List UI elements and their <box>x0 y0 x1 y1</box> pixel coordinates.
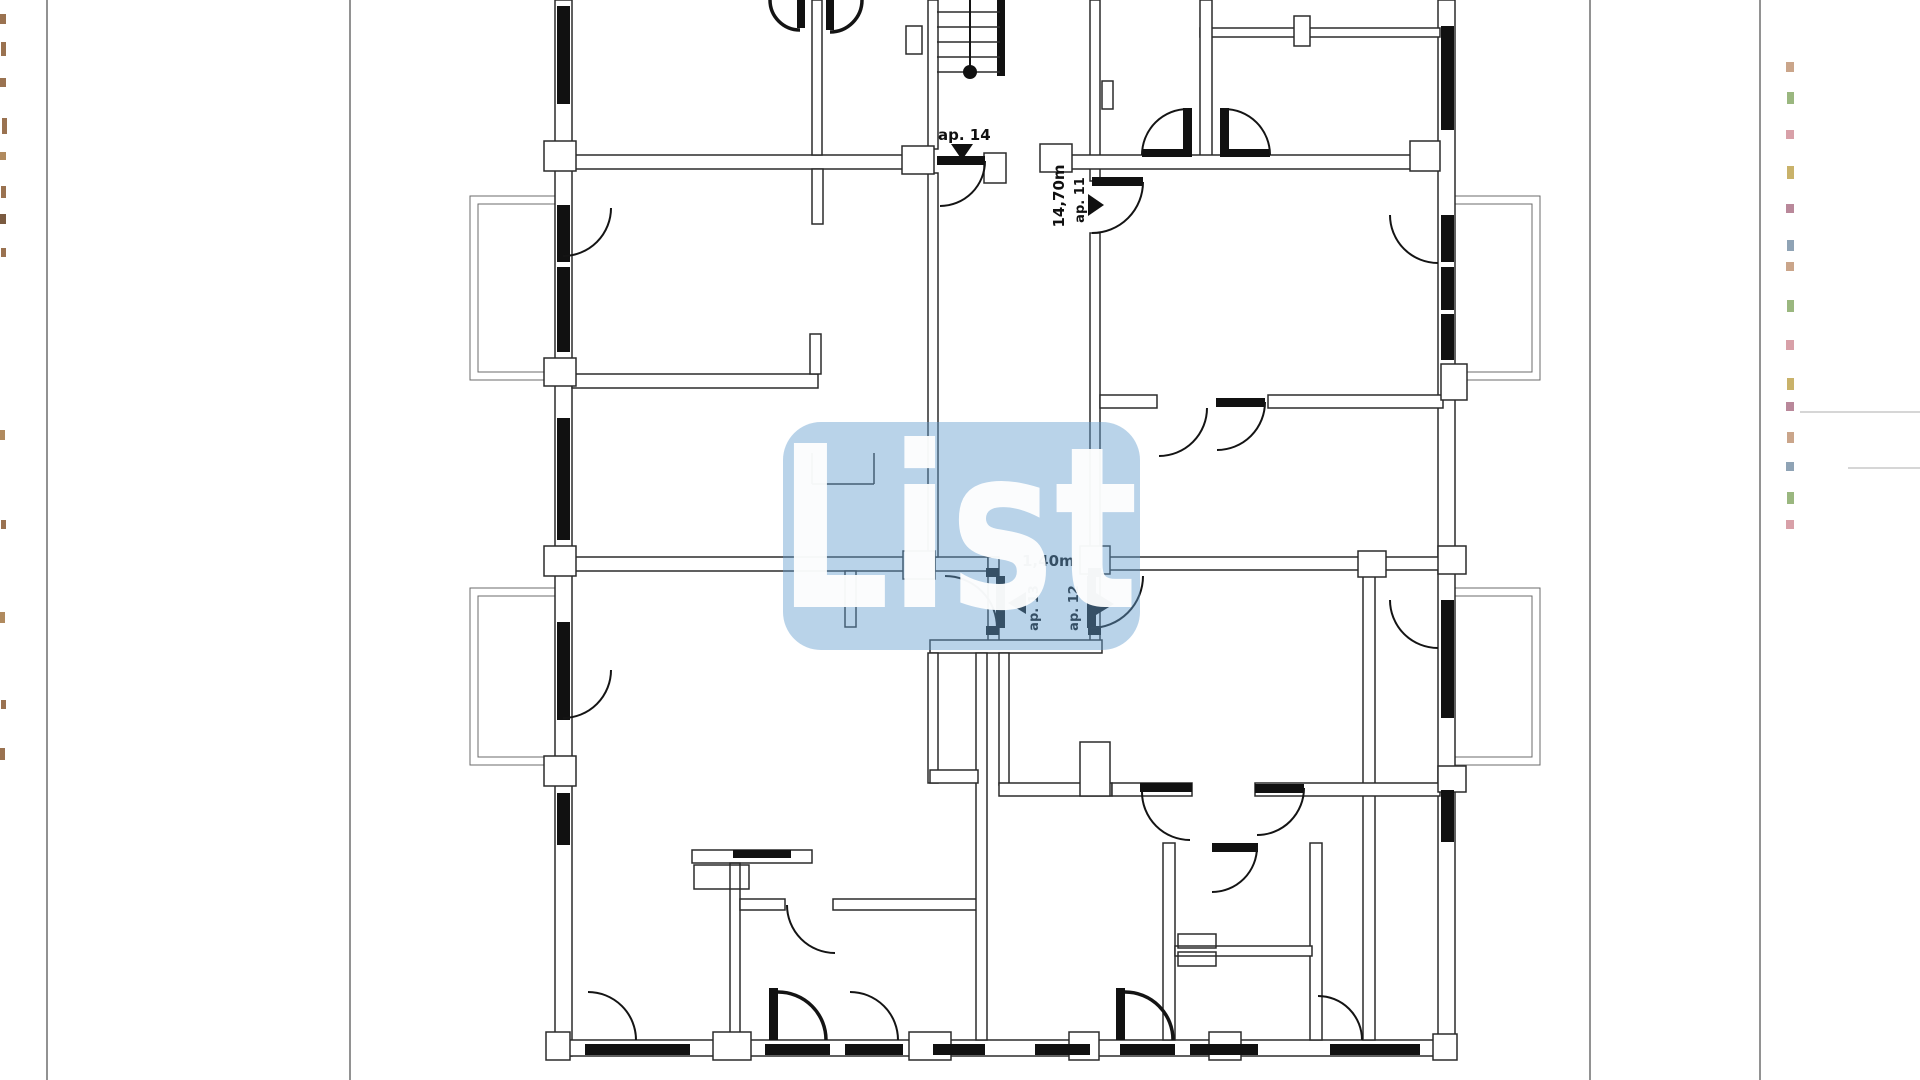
label-dim-ap11: 14,70m <box>1050 164 1068 227</box>
stair-landing-dot <box>963 65 977 79</box>
entrance-arrow-ap11 <box>1088 194 1104 216</box>
outer-wall-top-right <box>1200 28 1440 37</box>
watermark-text: List <box>778 398 1138 660</box>
floor-plan-drawing: ap. 14 14,70m ap. 11 1,40m ap. 13 ap. 12… <box>0 0 1920 1080</box>
label-ap11: ap. 11 <box>1073 177 1088 223</box>
scan-artifact-left <box>0 14 7 760</box>
scanned-page: ap. 14 14,70m ap. 11 1,40m ap. 13 ap. 12… <box>0 0 1920 1080</box>
label-ap14: ap. 14 <box>938 126 991 144</box>
stairs <box>937 0 1005 79</box>
entrance-door-ap14 <box>937 156 985 206</box>
scan-artifact-right <box>1786 62 1794 529</box>
watermark: List <box>778 398 1140 660</box>
